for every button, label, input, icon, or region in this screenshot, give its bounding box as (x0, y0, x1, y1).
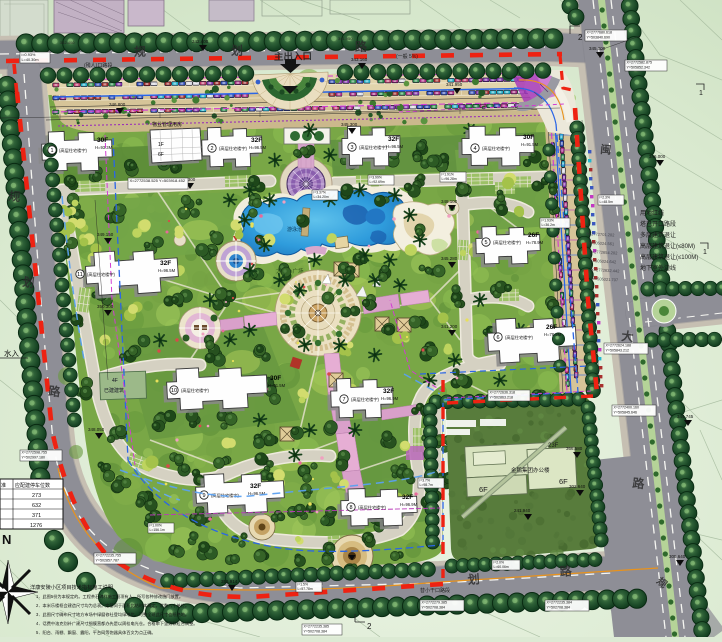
svg-text:345.300: 345.300 (341, 122, 358, 127)
svg-text:H=96.9M: H=96.9M (400, 502, 418, 507)
svg-text:305.640: 305.640 (669, 554, 686, 559)
svg-text:准: 准 (1, 482, 6, 489)
svg-text:(残人)口路段: (残人)口路段 (84, 62, 112, 69)
svg-text:(高层住宅楼宇): (高层住宅楼宇) (219, 145, 248, 152)
svg-text:6F: 6F (559, 477, 568, 486)
svg-text:划: 划 (22, 274, 36, 290)
svg-text:30F: 30F (523, 134, 534, 141)
svg-text:9: 9 (202, 493, 205, 499)
svg-text:351.914: 351.914 (221, 579, 238, 584)
svg-text:(高层住宅楼宇): (高层住宅楼宇) (359, 144, 388, 151)
svg-text:路: 路 (355, 39, 368, 54)
svg-text:342.400: 342.400 (60, 40, 75, 45)
svg-text:Y=502708.384: Y=502708.384 (422, 605, 445, 609)
svg-text:L=36.2m: L=36.2m (542, 223, 555, 227)
svg-text:X=2772400.160: X=2772400.160 (614, 406, 639, 410)
svg-text:i=3.99%: i=3.99% (370, 175, 382, 179)
svg-text:i=1.91%: i=1.91% (442, 172, 454, 176)
svg-text:10: 10 (171, 388, 177, 394)
svg-text:26F: 26F (546, 324, 557, 331)
svg-text:(高层住宅楼宇): (高层住宅楼宇) (482, 145, 511, 152)
svg-text:4: 4 (473, 146, 476, 152)
svg-text:i=2.3%: i=2.3% (600, 195, 610, 199)
svg-text:(一般 5%): (一般 5%) (396, 53, 418, 60)
svg-text:341.200: 341.200 (441, 324, 458, 329)
svg-text:1．此图5份为本规定的。工程茶石碑样施工图项有人，所写各种修: 1．此图5份为本规定的。工程茶石碑样施工图项有人，所写各种修改施门放置。 (36, 593, 183, 600)
svg-text:划: 划 (231, 43, 243, 58)
svg-text:1F: 1F (158, 142, 164, 148)
svg-text:2: 2 (210, 146, 213, 152)
svg-text:6: 6 (496, 335, 499, 341)
svg-text:H=78.9M: H=78.9M (544, 332, 562, 337)
svg-text:(高层住宅楼宇): (高层住宅楼宇) (505, 334, 534, 341)
svg-text:H=91.5M: H=91.5M (268, 383, 286, 388)
svg-text:主出入口: 主出入口 (274, 50, 312, 63)
svg-text:划: 划 (467, 571, 480, 587)
svg-text:L=92.69m: L=92.69m (370, 180, 385, 184)
svg-text:346.800: 346.800 (109, 102, 126, 107)
svg-text:用地红线: 用地红线 (640, 209, 664, 217)
svg-text:已建建筑: 已建建筑 (104, 387, 124, 394)
svg-text:348.050: 348.050 (88, 427, 105, 432)
svg-text:规: 规 (8, 188, 22, 204)
svg-text:30F: 30F (270, 375, 281, 382)
svg-text:i=3.37%: i=3.37% (314, 190, 326, 194)
svg-text:游泳池: 游泳池 (287, 226, 302, 233)
svg-text:X=2772624.188: X=2772624.188 (606, 344, 631, 348)
svg-text:应配建停车位数: 应配建停车位数 (15, 482, 50, 489)
svg-text:5．阳台、雨棚、飘窗、露阳，平台同等饱器具体百文为点正确。: 5．阳台、雨棚、飘窗、露阳，平台同等饱器具体百文为点正确。 (36, 629, 156, 636)
svg-text:(高层住宅楼宇): (高层住宅楼宇) (358, 504, 387, 511)
svg-text:Y=502708.384: Y=502708.384 (304, 629, 327, 633)
svg-text:1: 1 (703, 249, 707, 256)
svg-text:7: 7 (342, 397, 345, 403)
svg-text:32F: 32F (160, 260, 171, 267)
svg-text:X=2772598.755: X=2772598.755 (22, 451, 47, 455)
svg-text:366.580: 366.580 (566, 446, 583, 451)
svg-text:Y=505845.646: Y=505845.646 (614, 410, 637, 414)
svg-text:H=78.9M: H=78.9M (526, 240, 544, 245)
svg-text:23F: 23F (548, 443, 559, 449)
svg-text:(高层住宅楼宇): (高层住宅楼宇) (493, 239, 522, 246)
svg-text:Y=505852.342: Y=505852.342 (627, 65, 650, 69)
svg-text:349.150: 349.150 (97, 232, 114, 237)
svg-text:32F: 32F (251, 137, 262, 144)
svg-text:金鹏集团办公楼: 金鹏集团办公楼 (511, 466, 550, 474)
svg-text:348.100: 348.100 (441, 199, 458, 204)
svg-text:32F: 32F (402, 494, 413, 501)
svg-text:X=2772582.875: X=2772582.875 (627, 61, 652, 65)
svg-text:X=2772235.384: X=2772235.384 (547, 601, 572, 605)
svg-text:闽: 闽 (600, 142, 612, 157)
svg-text:32F: 32F (388, 136, 399, 143)
svg-text:N: N (2, 532, 11, 547)
svg-text:350.300: 350.300 (97, 304, 114, 309)
svg-text:L=48.5m: L=48.5m (600, 200, 613, 204)
svg-text:L=60.06m: L=60.06m (494, 565, 509, 569)
svg-text:4F: 4F (112, 378, 118, 384)
svg-text:26F: 26F (528, 232, 539, 239)
svg-text:H=96.5M: H=96.5M (386, 144, 404, 149)
svg-text:i=3.7%: i=3.7% (420, 478, 430, 482)
svg-text:i=1.93%: i=1.93% (542, 218, 554, 222)
svg-text:替小干口路段: 替小干口路段 (420, 587, 450, 594)
svg-text:341.950: 341.950 (446, 82, 463, 87)
svg-text:5: 5 (484, 240, 487, 246)
svg-text:Y=502863.218: Y=502863.218 (490, 395, 513, 399)
svg-text:X=2772636.318: X=2772636.318 (490, 391, 515, 395)
svg-text:X=2777680.618: X=2777680.618 (587, 31, 612, 35)
svg-text:2: 2 (367, 622, 372, 631)
svg-text:1276: 1276 (30, 523, 42, 529)
svg-text:L=98.7m: L=98.7m (420, 483, 433, 487)
svg-text:L=57.78m: L=57.78m (298, 587, 313, 591)
svg-text:路: 路 (559, 563, 573, 579)
svg-text:302.640: 302.640 (569, 484, 586, 489)
svg-text:4．话费中洛克别补广建尺寸细膜营都办先是以周桂电光仓。合格审: 4．话费中洛克别补广建尺寸细膜营都办先是以周桂电光仓。合格审下竖男联粒合调整。 (36, 620, 197, 627)
svg-text:6F: 6F (479, 485, 488, 494)
svg-text:(高层住宅楼宇): (高层住宅楼宇) (181, 387, 210, 394)
svg-text:物业管理用房: 物业管理用房 (152, 121, 182, 128)
svg-text:(高层住宅楼宇): (高层住宅楼宇) (351, 396, 380, 403)
svg-text:L=34.20m: L=34.20m (314, 195, 329, 199)
svg-text:342.400: 342.400 (192, 39, 209, 44)
svg-text:Y=503840.690: Y=503840.690 (587, 35, 610, 39)
svg-text:345.280: 345.280 (441, 256, 458, 261)
svg-text:i=0.93%: i=0.93% (22, 53, 36, 57)
svg-text:Y=502857.787: Y=502857.787 (96, 558, 119, 562)
svg-text:32F: 32F (383, 388, 394, 395)
svg-text:地下室外边线: 地下室外边线 (640, 264, 676, 272)
svg-text:多层建筑退让: 多层建筑退让 (640, 231, 676, 239)
svg-text:洋康安陵小区项目技术指标施工说明: 洋康安陵小区项目技术指标施工说明 (30, 583, 113, 591)
svg-text:H=93.3M: H=93.3M (95, 145, 113, 150)
svg-text:632: 632 (32, 503, 41, 509)
svg-text:343.160: 343.160 (351, 57, 368, 62)
svg-text:Y=505843.212: Y=505843.212 (606, 348, 629, 352)
svg-text:X=2772235.385: X=2772235.385 (304, 625, 329, 629)
svg-text:1: 1 (699, 90, 703, 97)
svg-text:L=40.30m: L=40.30m (22, 58, 39, 62)
svg-text:i=1.00%: i=1.00% (150, 523, 162, 527)
svg-text:345.000: 345.000 (589, 46, 606, 51)
svg-text:(高层住宅楼宇): (高层住宅楼宇) (87, 271, 116, 278)
svg-text:高层建筑退让(≤80M): 高层建筑退让(≤80M) (640, 242, 695, 250)
svg-text:高层建筑退让(≤100M): 高层建筑退让(≤100M) (640, 253, 698, 261)
svg-text:3．此图尺寸确布尺寸地方市场中绿暦修社登均绿地比。可整全现此: 3．此图尺寸确布尺寸地方市场中绿暦修社登均绿地比。可整全现此尺寸也纸绝地。 (36, 611, 189, 618)
svg-text:371: 371 (32, 513, 41, 519)
svg-text:i=1.5%: i=1.5% (298, 582, 308, 586)
svg-text:水入: 水入 (4, 348, 19, 358)
svg-text:H=96.5M: H=96.5M (158, 268, 176, 273)
svg-text:2: 2 (578, 33, 583, 42)
svg-text:2．本米乐楼框会建造尺寸均为总表。定基同于面积比结时本确定。: 2．本米乐楼框会建造尺寸均为总表。定基同于面积比结时本确定。常数八十单位。 (36, 602, 189, 609)
svg-text:L=156.1m: L=156.1m (150, 528, 165, 532)
svg-text:(高层住宅楼宇): (高层住宅楼宇) (59, 147, 88, 154)
svg-text:30F: 30F (97, 137, 108, 144)
svg-text:273: 273 (32, 493, 41, 499)
svg-text:X=2772279.385: X=2772279.385 (422, 601, 447, 605)
svg-text:346.000: 346.000 (649, 154, 666, 159)
svg-text:Y=502708.384: Y=502708.384 (547, 605, 570, 609)
svg-text:L=96.28m: L=96.28m (442, 177, 457, 181)
svg-text:塔已开口路段: 塔已开口路段 (640, 220, 676, 228)
svg-text:X=2772235.755: X=2772235.755 (96, 554, 121, 558)
svg-text:32F: 32F (250, 483, 261, 490)
svg-text:344.745: 344.745 (677, 414, 694, 419)
svg-text:X=2772538.525 Y=503918.452: X=2772538.525 Y=503918.452 (130, 178, 186, 183)
svg-text:规: 规 (134, 44, 146, 59)
svg-text:Y=502997.180: Y=502997.180 (22, 455, 45, 459)
svg-text:8: 8 (349, 505, 352, 511)
svg-text:341.950: 341.950 (338, 36, 353, 41)
svg-text:11: 11 (77, 272, 83, 278)
svg-text:3: 3 (350, 145, 353, 151)
svg-text:i=2.0%: i=2.0% (494, 560, 504, 564)
svg-text:H=91.5M: H=91.5M (521, 142, 539, 147)
svg-text:1: 1 (50, 148, 53, 154)
svg-text:6F: 6F (158, 152, 164, 158)
svg-text:H=96.5M: H=96.5M (249, 145, 267, 150)
svg-text:H=96.9M: H=96.9M (381, 396, 399, 401)
svg-text:大: 大 (621, 328, 635, 344)
